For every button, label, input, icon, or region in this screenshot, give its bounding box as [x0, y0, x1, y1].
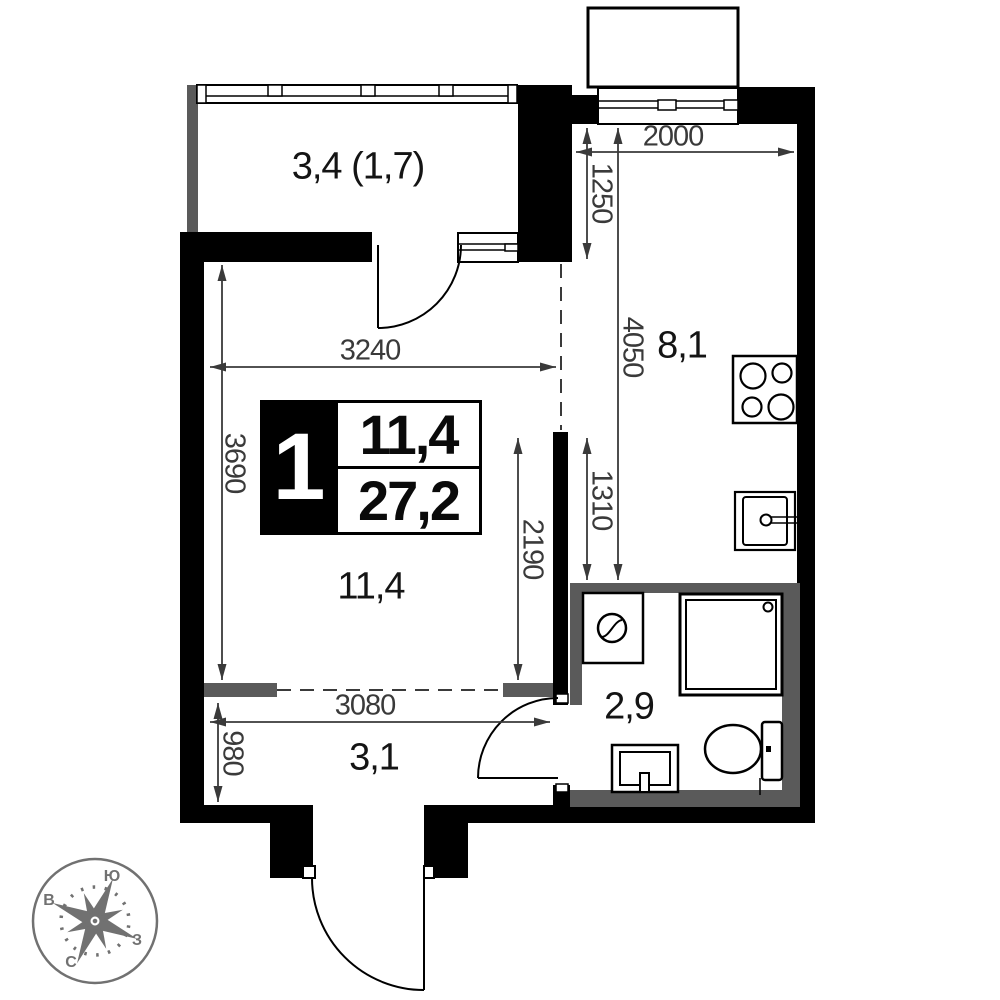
dim-4050: 4050: [616, 317, 649, 378]
wall-bottom-left: [180, 805, 313, 823]
compass-north-label: С: [65, 954, 77, 972]
wall-kitchen-top-left: [518, 95, 602, 124]
bathroom-wall-bottom: [570, 790, 800, 807]
kitchen-window: [598, 88, 738, 124]
hallway-stub-left: [204, 683, 277, 697]
floor-plan-drawing: [0, 0, 1000, 1000]
rooms-count: 1: [260, 400, 338, 535]
balcony-area-label: 3,4 (1,7): [292, 146, 425, 189]
wall-room-bathroom: [553, 432, 568, 705]
dim-2190: 2190: [516, 519, 549, 580]
dim-3690: 3690: [218, 433, 251, 494]
living-area-label: 11,4: [337, 566, 404, 609]
bathroom-wall-top: [570, 583, 800, 593]
dim-1310: 1310: [585, 470, 618, 531]
balcony-window: [197, 85, 517, 103]
wall-balcony-room: [180, 232, 372, 262]
areas-column: 11,4 27,2: [338, 400, 482, 535]
bathroom-sink: [612, 745, 678, 792]
hallway-stub-right: [503, 683, 553, 697]
hallway-area-label: 3,1: [349, 737, 399, 780]
apartment-info-box: 1 11,4 27,2: [260, 400, 482, 535]
wall-left: [180, 232, 204, 823]
kitchen-area-label: 8,1: [657, 325, 707, 368]
shower: [680, 594, 782, 695]
compass-rose: [33, 859, 157, 983]
compass-south-label: Ю: [104, 868, 121, 886]
washing-machine: [583, 593, 643, 663]
compass-west-label: В: [43, 892, 55, 910]
floor-plan-page: 3,4 (1,7) 8,1 11,4 2,9 3,1 2000 1250 405…: [0, 0, 1000, 1000]
balcony-left-wall: [187, 85, 198, 232]
dim-2000: 2000: [643, 121, 704, 154]
bathroom-wall-left: [570, 583, 582, 705]
living-area-value: 11,4: [338, 403, 479, 469]
wall-bottom-right: [424, 805, 815, 823]
dim-980: 980: [216, 730, 249, 775]
bathroom-wall-right: [782, 583, 800, 807]
stove: [733, 356, 797, 423]
balcony-door: [378, 245, 461, 328]
entrance-door: [312, 878, 424, 990]
dim-3080: 3080: [335, 690, 396, 723]
toilet: [705, 722, 782, 795]
bathroom-area-label: 2,9: [604, 686, 654, 729]
dim-3240: 3240: [340, 335, 401, 368]
bathroom-door: [478, 698, 558, 778]
compass-east-label: З: [132, 932, 142, 950]
total-area-value: 27,2: [338, 469, 479, 532]
neighbour-balcony-outline: [588, 8, 738, 87]
dim-1250: 1250: [585, 163, 618, 224]
kitchen-sink: [735, 492, 797, 550]
balcony-door-window: [458, 233, 518, 262]
